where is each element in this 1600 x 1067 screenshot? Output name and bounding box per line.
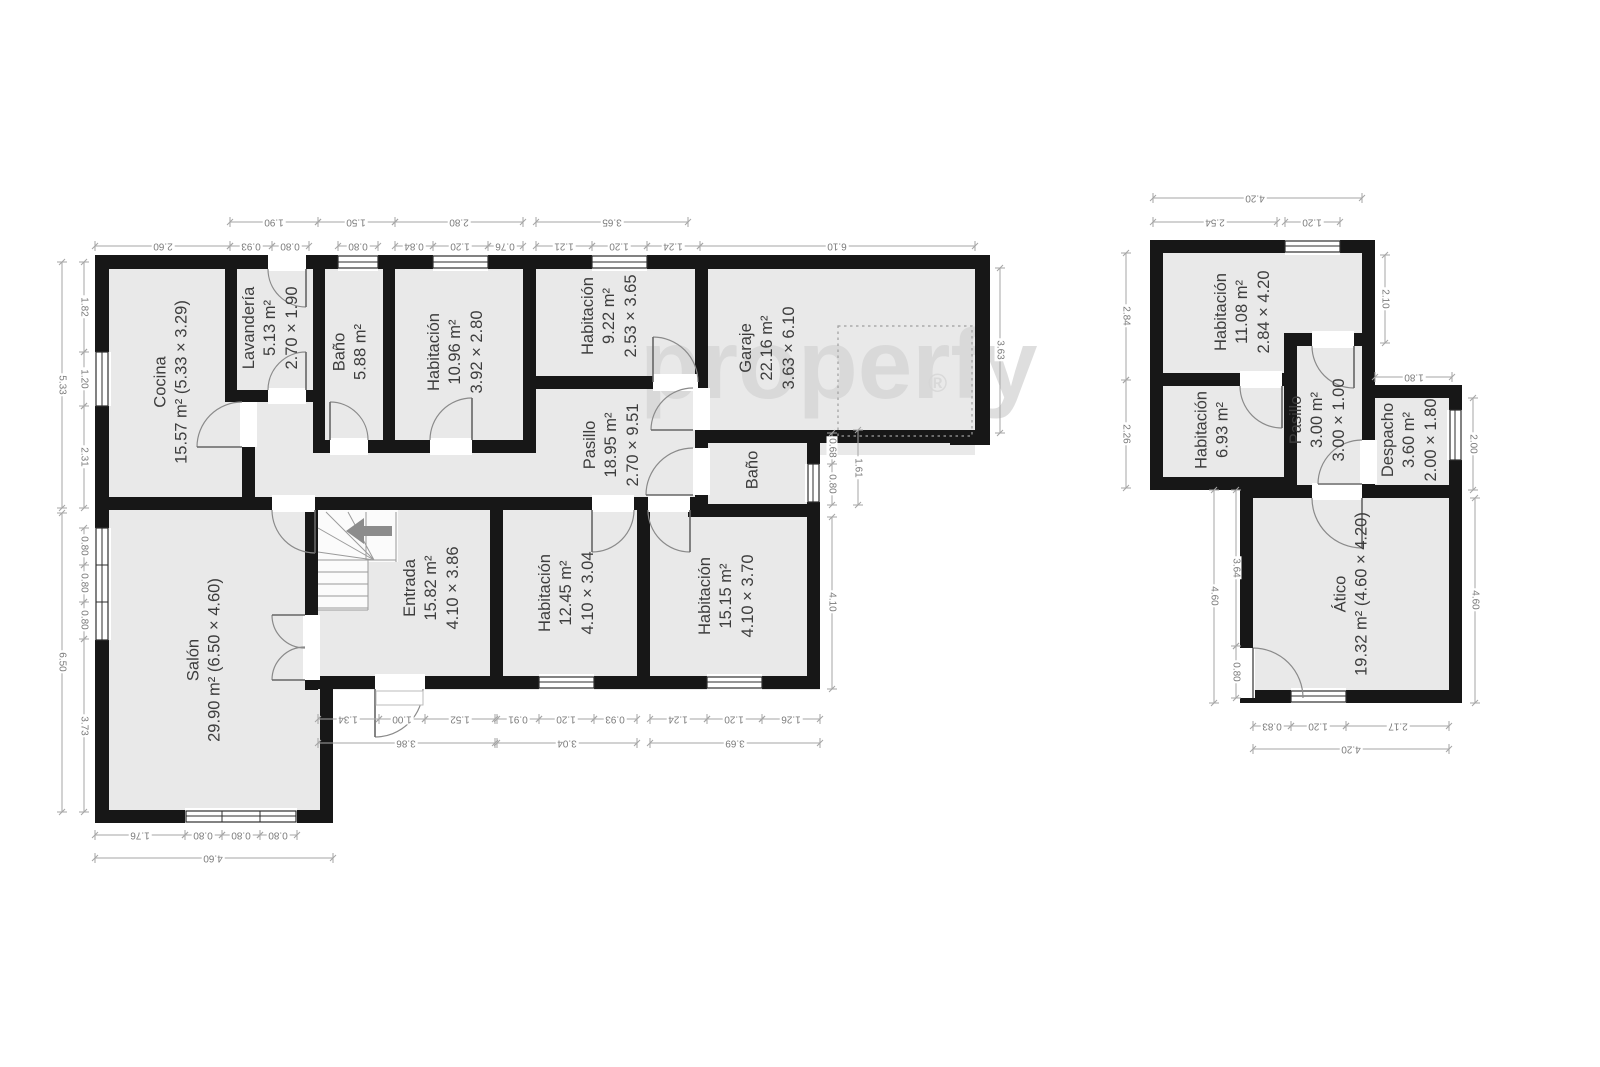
floorplan-canvas: properfy ® (0, 0, 1600, 1067)
svg-text:®: ® (928, 368, 947, 398)
floorplan-drawing: properfy ® (0, 0, 1600, 1067)
front-door-step (376, 691, 423, 705)
